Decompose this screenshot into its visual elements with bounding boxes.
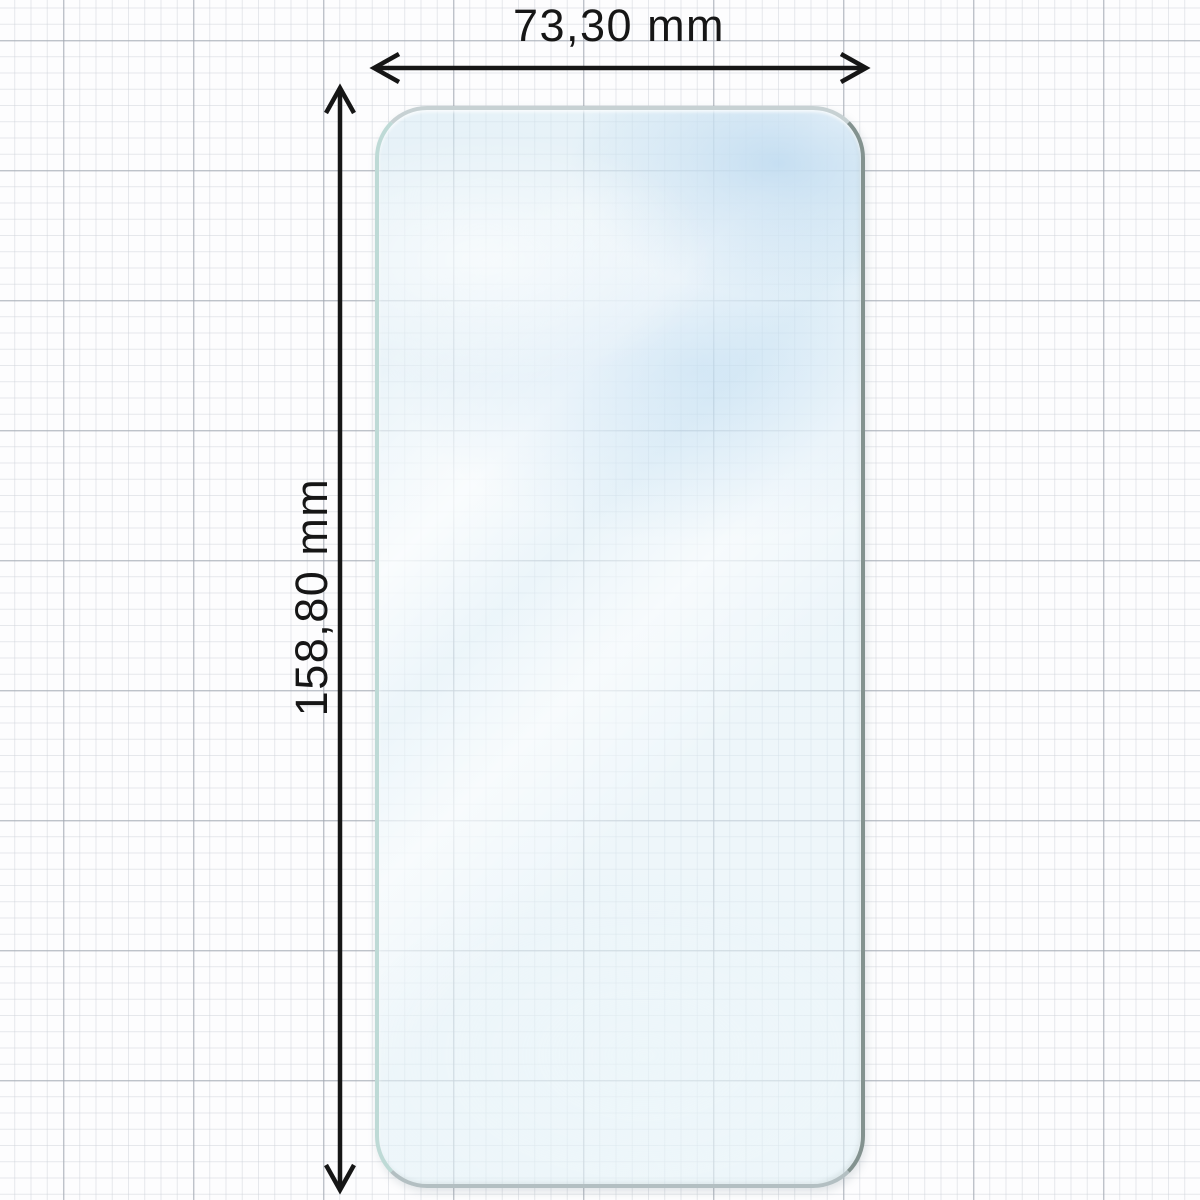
width-dimension-label: 73,30 mm <box>513 0 725 52</box>
screen-protector-film <box>375 106 865 1188</box>
width-arrow-icon <box>374 54 866 82</box>
glass-reflection <box>379 110 861 1184</box>
height-dimension-label: 158,80 mm <box>286 478 338 717</box>
graph-paper-canvas: 73,30 mm 158,80 mm <box>0 0 1200 1200</box>
